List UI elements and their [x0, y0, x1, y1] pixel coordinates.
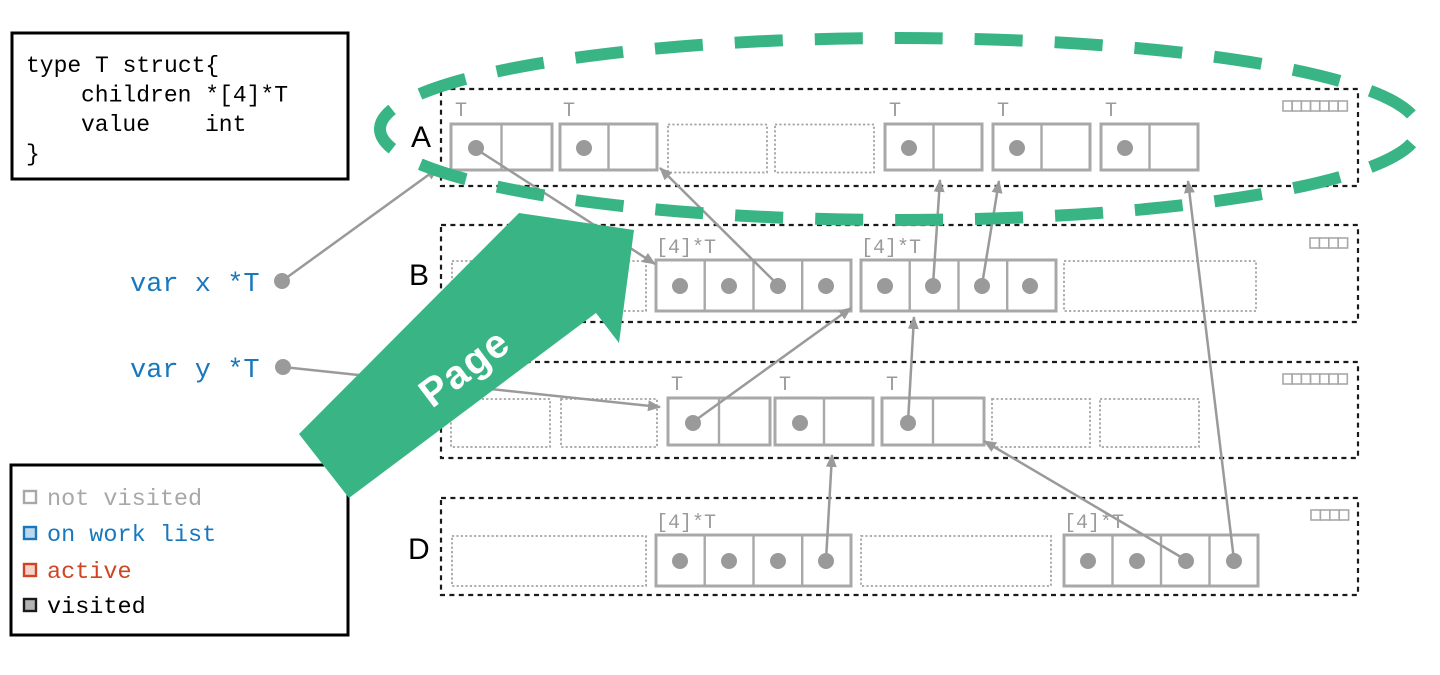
svg-text:active: active	[47, 559, 132, 586]
svg-text:T: T	[889, 100, 901, 123]
svg-text:B: B	[409, 259, 429, 292]
svg-text:visited: visited	[47, 594, 146, 621]
svg-text:type T struct{: type T struct{	[26, 53, 219, 79]
svg-text:[4]*T: [4]*T	[1064, 512, 1124, 535]
svg-text:D: D	[408, 533, 430, 566]
svg-text:value: value	[81, 112, 150, 138]
svg-text:T: T	[779, 374, 791, 397]
svg-text:var x *T: var x *T	[130, 270, 260, 300]
svg-text:T: T	[886, 374, 898, 397]
svg-text:T: T	[1105, 100, 1117, 123]
svg-text:[4]*T: [4]*T	[656, 512, 716, 535]
svg-text:int: int	[205, 112, 246, 138]
svg-text:T: T	[563, 100, 575, 123]
svg-text:not visited: not visited	[47, 486, 202, 513]
svg-text:T: T	[455, 100, 467, 123]
svg-text:T: T	[997, 100, 1009, 123]
svg-text:[4]*T: [4]*T	[861, 237, 921, 260]
svg-text:[4]*T: [4]*T	[656, 237, 716, 260]
svg-text:var y *T: var y *T	[130, 356, 260, 386]
svg-text:on work list: on work list	[47, 522, 216, 549]
svg-text:A: A	[411, 121, 431, 154]
svg-text:}: }	[26, 142, 40, 168]
svg-text:T: T	[671, 374, 683, 397]
svg-text:children *[4]*T: children *[4]*T	[81, 83, 288, 109]
